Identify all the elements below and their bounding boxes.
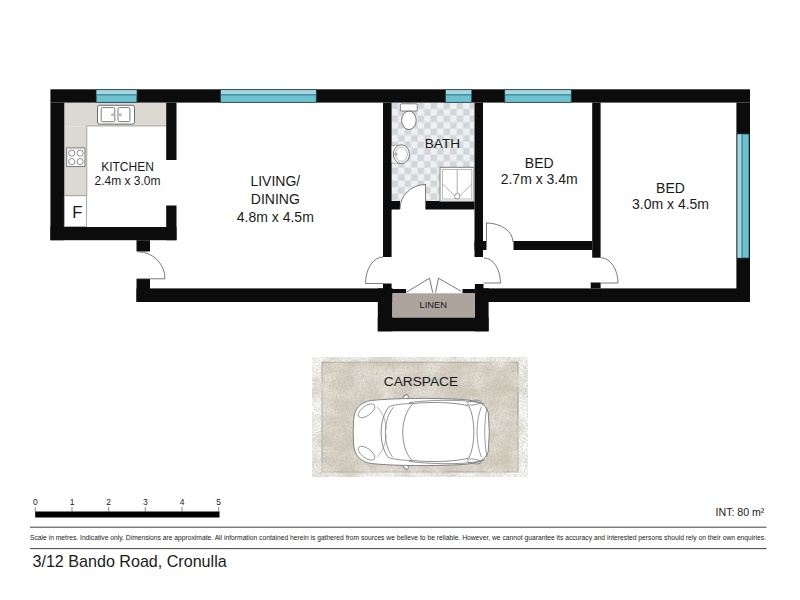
svg-text:2.4m x 3.0m: 2.4m x 3.0m [94,174,160,188]
svg-text:4: 4 [180,497,185,507]
svg-text:LINEN: LINEN [419,299,447,310]
svg-text:BED: BED [525,155,554,171]
svg-text:Scale in metres. Indicative on: Scale in metres. Indicative only. Dimens… [30,534,766,542]
svg-text:1: 1 [70,497,75,507]
svg-text:CARSPACE: CARSPACE [384,374,458,389]
svg-text:2: 2 [106,497,111,507]
svg-text:5: 5 [216,497,221,507]
svg-text:3/12 Bando Road, Cronulla: 3/12 Bando Road, Cronulla [33,552,227,570]
svg-text:2.7m x 3.4m: 2.7m x 3.4m [501,171,578,187]
svg-text:INT: 80 m²: INT: 80 m² [716,506,765,518]
svg-text:BATH: BATH [425,136,460,151]
svg-text:3: 3 [143,497,148,507]
svg-text:LIVING/: LIVING/ [250,173,300,189]
svg-text:F: F [72,203,82,221]
svg-text:0: 0 [33,497,38,507]
svg-text:KITCHEN: KITCHEN [101,160,154,174]
svg-text:DINING: DINING [251,191,300,207]
svg-text:4.8m x 4.5m: 4.8m x 4.5m [237,209,314,225]
svg-text:BED: BED [656,180,685,196]
svg-text:3.0m x 4.5m: 3.0m x 4.5m [632,196,709,212]
